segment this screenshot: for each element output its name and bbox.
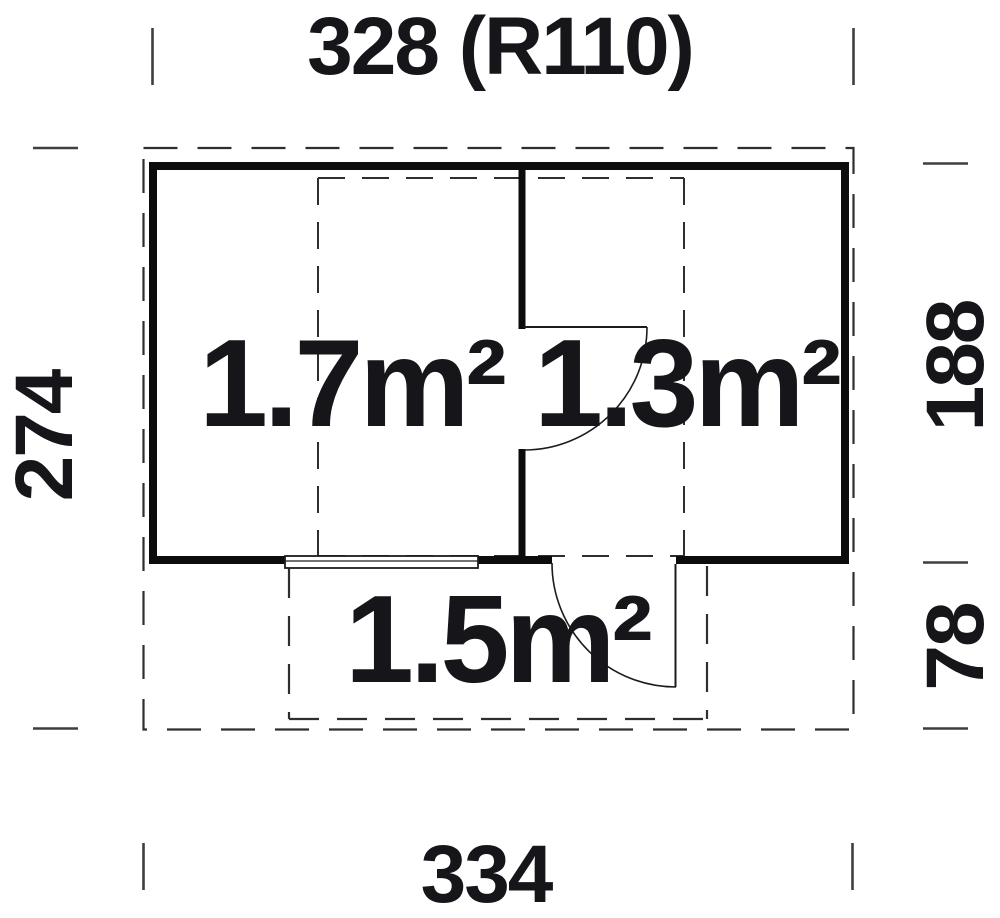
floorplan-canvas: 328 (R110) 274 188 78 334 1.7m² 1.3m² 1.… [0,0,1000,918]
dimension-width-top: 328 (R110) [307,6,693,88]
dimension-depth-right-main: 188 [915,301,997,432]
window-frame [285,556,478,568]
room-area-label-porch: 1.5m² [345,578,649,702]
room-area-label-left: 1.7m² [199,322,503,446]
room-area-label-right: 1.3m² [534,322,838,446]
dimension-width-bottom: 334 [421,834,552,916]
dimension-depth-right-porch: 78 [915,603,997,690]
plan-linework [0,0,1000,918]
window [285,556,478,568]
dimension-ticks [33,28,968,890]
dimension-depth-left: 274 [4,371,86,502]
